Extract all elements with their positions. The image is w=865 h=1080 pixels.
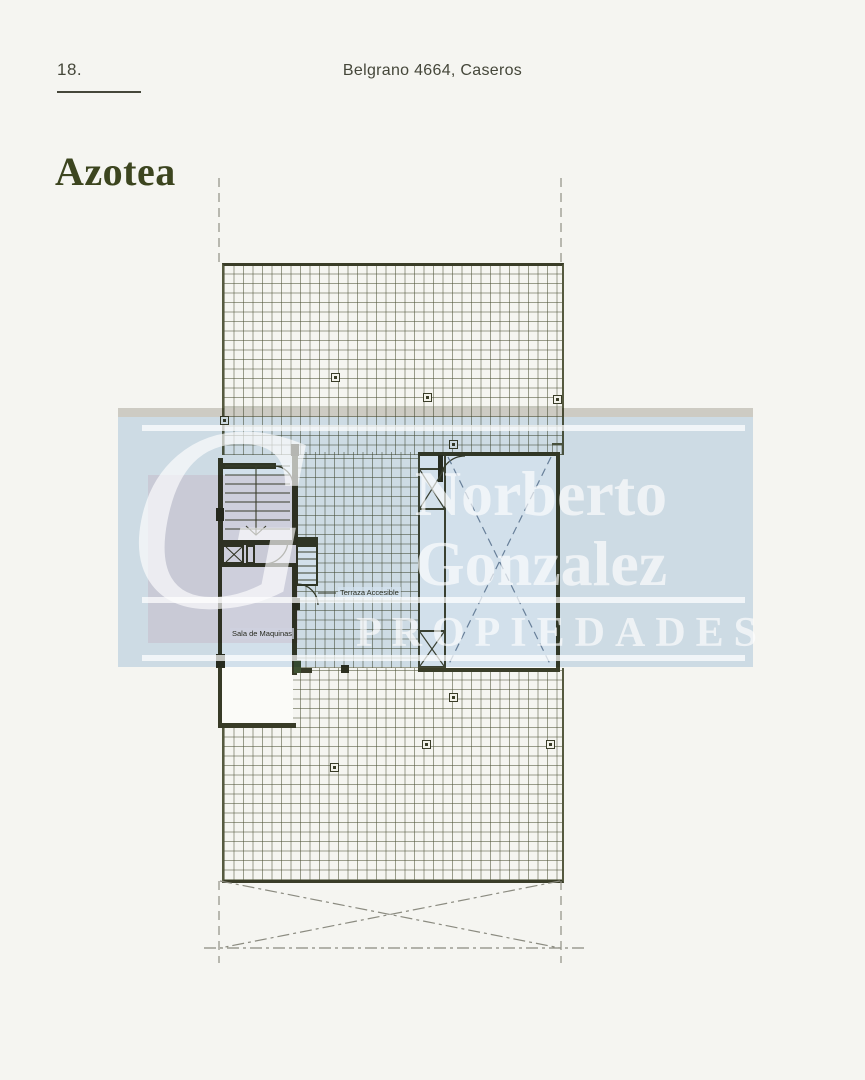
- plan-linework: [0, 0, 865, 1080]
- terrace-label: Terraza Accesible: [338, 587, 401, 598]
- machine-room-label: Sala de Maquinas: [230, 628, 294, 639]
- brochure-page: 18. Belgrano 4664, Caseros Azotea: [0, 0, 865, 1080]
- floor-plan: Terraza Accesible Sala de Maquinas: [0, 0, 865, 1080]
